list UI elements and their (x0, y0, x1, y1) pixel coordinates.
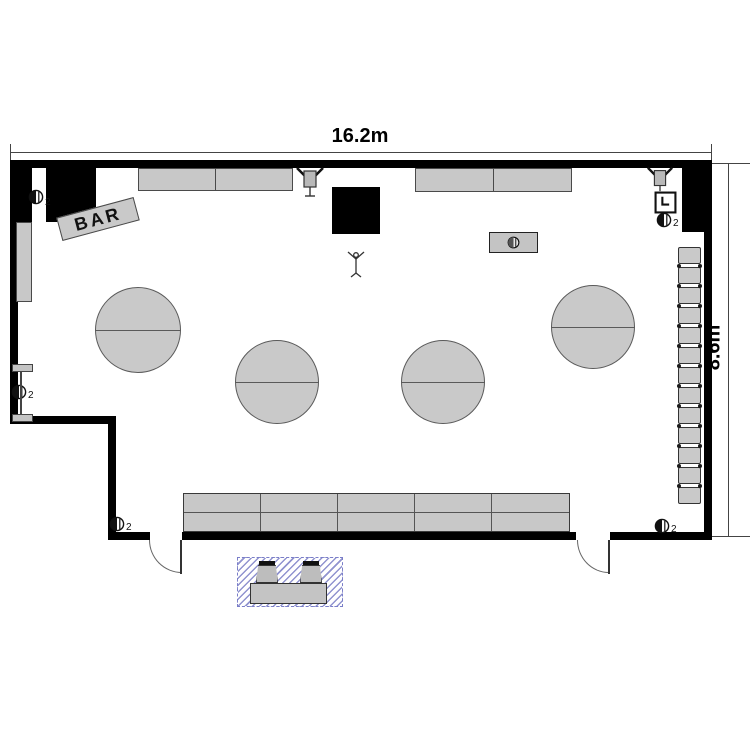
stool (678, 307, 701, 324)
top-counter-right (415, 168, 572, 192)
outlet-subscript: 2 (45, 197, 51, 208)
corner-block-top-right (682, 168, 704, 232)
right-dimension-line (728, 164, 729, 537)
top-counter-left (138, 168, 293, 191)
bench-cell (492, 513, 569, 532)
floor-plan: 16.2m 8.6m BAR (0, 0, 750, 750)
wall-top (10, 160, 712, 168)
stool-cap (259, 561, 275, 565)
stool (678, 247, 701, 264)
bench-cell (338, 513, 415, 532)
stool (678, 447, 701, 464)
bench-cell (415, 494, 492, 513)
bench-cell (492, 494, 569, 513)
round-table (401, 340, 485, 424)
stool (678, 267, 701, 284)
width-dimension-label: 16.2m (300, 125, 420, 148)
wall-speaker-icon (644, 165, 676, 193)
round-table (95, 287, 181, 373)
stool (678, 287, 701, 304)
counter-segment (416, 169, 494, 191)
stool (678, 487, 701, 504)
outside-stool (256, 561, 278, 583)
wall-bottom-left (108, 532, 150, 540)
counter-segment (139, 169, 216, 190)
outside-stool (300, 561, 322, 583)
outlet-icon (656, 212, 672, 228)
left-door-leaf (180, 540, 182, 574)
stool-column (678, 247, 701, 507)
stool (678, 347, 701, 364)
right-door-leaf (608, 540, 610, 574)
stool (678, 327, 701, 344)
stool (678, 387, 701, 404)
bench-cell (261, 494, 338, 513)
left-wall-counter (16, 222, 32, 302)
counter-segment (216, 169, 292, 190)
round-table (235, 340, 319, 424)
stool (678, 367, 701, 384)
bench-cell (415, 513, 492, 532)
wall-right (704, 160, 712, 540)
wall-shelf (12, 364, 33, 372)
stool-cap (303, 561, 319, 565)
wall-shelf (12, 414, 33, 422)
left-door-swing-arc (149, 540, 182, 573)
stool-body (256, 565, 278, 583)
outlet-icon (11, 384, 27, 400)
outlet-subscript: 2 (126, 522, 132, 533)
sign-box (489, 232, 538, 253)
wall-bottom-main (182, 532, 576, 540)
outlet-icon (507, 236, 520, 249)
stool (678, 427, 701, 444)
equipment-block (332, 187, 380, 234)
wall-shelf-pole (20, 372, 22, 416)
mic-stand-figure-icon (344, 249, 368, 279)
top-dimension-line (10, 152, 712, 153)
outlet-subscript: 2 (28, 390, 34, 401)
bench-cell (184, 513, 261, 532)
right-dimension-tick-top (712, 163, 750, 164)
round-table (551, 285, 635, 369)
bench-cell (261, 513, 338, 532)
counter-segment (494, 169, 571, 191)
top-dimension-tick-right (711, 144, 712, 161)
l-mark-equipment-box-icon (654, 191, 677, 214)
top-dimension-tick-left (10, 144, 11, 161)
outlet-icon (28, 189, 44, 205)
bench-cell (184, 494, 261, 513)
right-door-swing-arc (577, 540, 609, 573)
stool-body (300, 565, 322, 583)
stool (678, 467, 701, 484)
bottom-bench (183, 493, 570, 532)
outlet-icon (654, 518, 670, 534)
outside-bench (250, 583, 327, 604)
outlet-subscript: 2 (671, 524, 677, 535)
wall-speaker-icon (293, 165, 327, 205)
bench-cell (338, 494, 415, 513)
stool (678, 407, 701, 424)
outlet-subscript: 2 (673, 218, 679, 229)
outlet-icon (109, 516, 125, 532)
right-dimension-tick-bottom (712, 536, 750, 537)
